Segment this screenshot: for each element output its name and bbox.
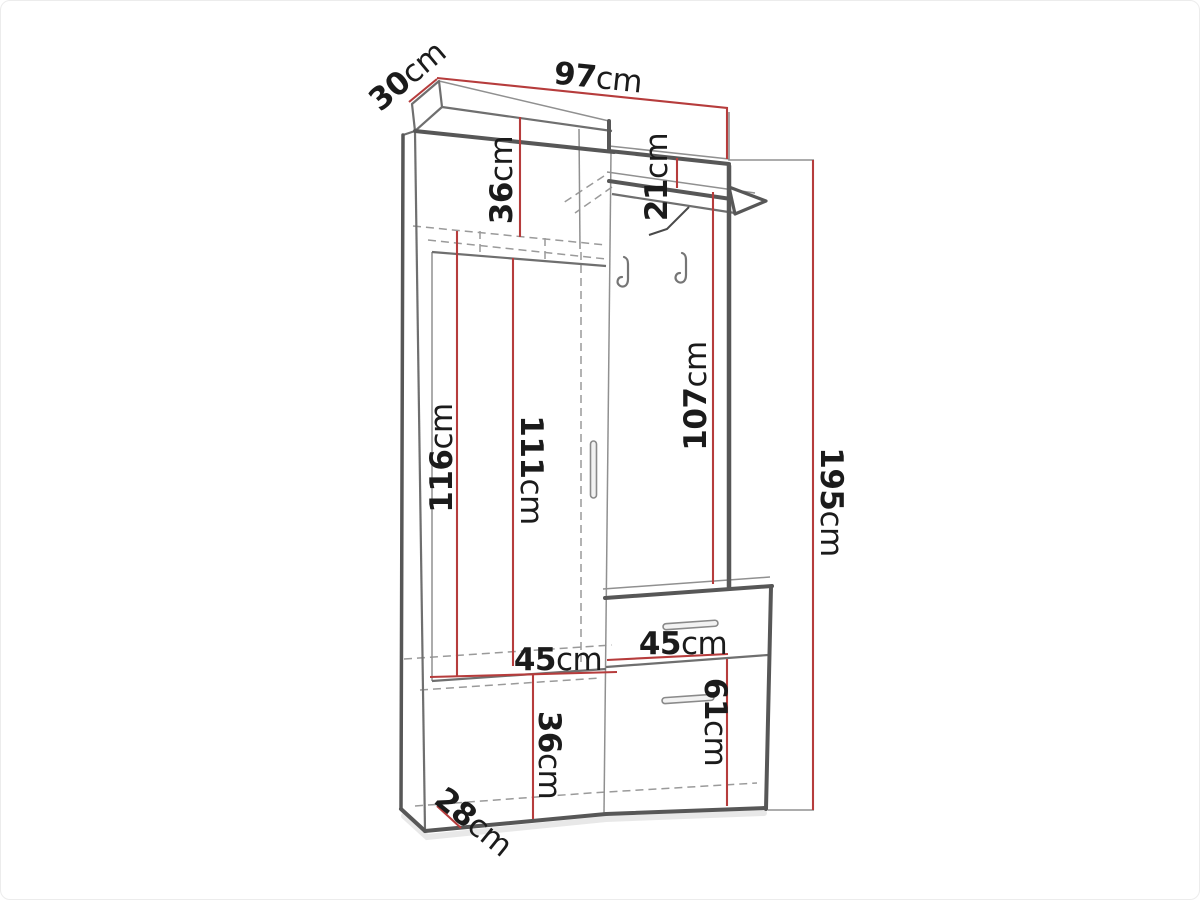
dim-label-panel-height: 107cm (678, 341, 714, 450)
hat-shelf-bracket (729, 187, 766, 214)
furniture-dimension-diagram: 30cm 97cm 36cm 21cm 116cm 111cm 107cm 19… (0, 0, 1200, 900)
center-joint-edge (604, 152, 611, 813)
coat-hook-icon (618, 257, 628, 287)
dimension-labels: 30cm 97cm 36cm 21cm 116cm 111cm 107cm 19… (362, 34, 849, 864)
coat-hooks (618, 253, 686, 287)
top-board-front-top-edge (442, 107, 612, 131)
dim-label-upper-cabinet-height: 36cm (484, 136, 520, 224)
dim-label-left-interior-width: 45cm (514, 642, 602, 678)
door-top-edge (432, 252, 606, 266)
dim-label-total-height: 195cm (813, 447, 849, 556)
dim-label-lower-door-height: 61cm (697, 678, 733, 766)
dim-label-drawer-width: 45cm (639, 626, 727, 662)
wardrobe-drawing-canvas: 30cm 97cm 36cm 21cm 116cm 111cm 107cm 19… (0, 0, 1200, 900)
door-handle (591, 441, 597, 498)
dim-label-total-width: 97cm (552, 56, 644, 101)
left-side-panel-edge (401, 135, 403, 809)
height-extension-top (729, 112, 814, 160)
coat-hook-icon (676, 253, 686, 283)
dim-label-door-height: 111cm (513, 415, 549, 524)
dim-label-left-interior-height: 116cm (424, 403, 460, 512)
bench-right-edge (766, 587, 771, 809)
hidden-hatshelf-edge-1 (563, 176, 604, 203)
dim-label-shoe-compartment-height: 36cm (531, 711, 567, 799)
dim-label-shelf-drop: 21cm (639, 133, 675, 221)
